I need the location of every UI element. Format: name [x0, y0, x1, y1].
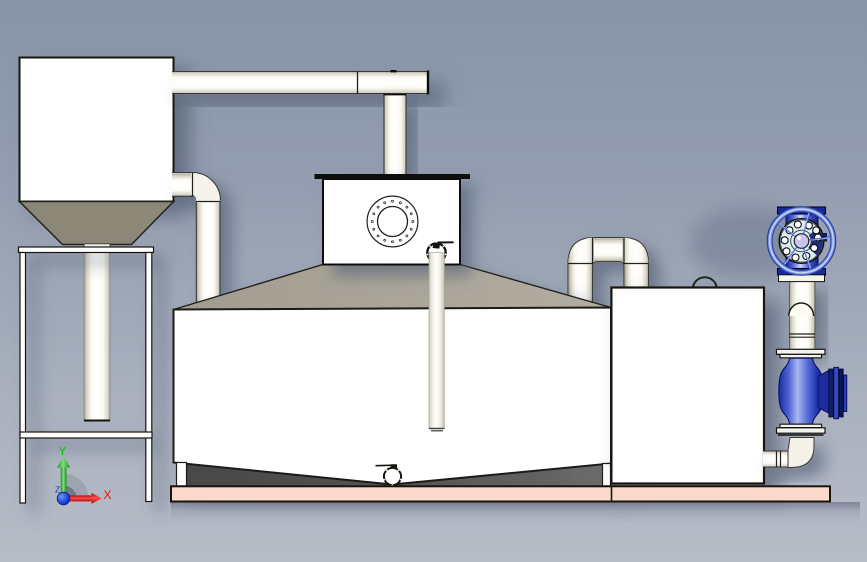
svg-text:Y: Y — [59, 444, 67, 458]
svg-text:X: X — [104, 488, 112, 502]
svg-text:Z: Z — [55, 485, 60, 495]
